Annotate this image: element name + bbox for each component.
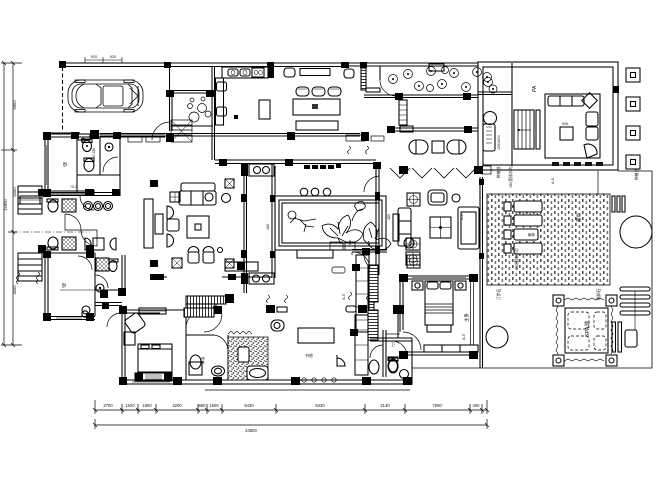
svg-text:SPA池: SPA池 [583, 320, 591, 337]
svg-text:躺椅: 躺椅 [528, 232, 535, 237]
svg-text:PA: PA [532, 85, 538, 92]
svg-text:1350x600: 1350x600 [497, 135, 501, 150]
svg-text:5450: 5450 [12, 187, 17, 197]
svg-text:卧: 卧 [62, 282, 67, 289]
svg-text:920: 920 [91, 55, 97, 59]
svg-text:4200: 4200 [172, 403, 182, 408]
svg-text:5430: 5430 [315, 403, 325, 408]
svg-text:7900: 7900 [432, 403, 442, 408]
svg-text:400: 400 [473, 403, 481, 408]
svg-text:920: 920 [110, 55, 116, 59]
svg-text:卧: 卧 [63, 161, 68, 168]
svg-text:15900: 15900 [3, 199, 8, 211]
svg-text:种植池: 种植池 [634, 168, 639, 180]
svg-text:A-9: A-9 [462, 334, 466, 340]
svg-text:24600: 24600 [245, 428, 257, 433]
svg-text:150宽排水沟: 150宽排水沟 [508, 166, 513, 188]
svg-text:A-9: A-9 [551, 178, 555, 184]
svg-text:9X6: 9X6 [562, 122, 568, 126]
svg-text:种植池: 种植池 [496, 166, 501, 178]
svg-text:5900: 5900 [12, 100, 17, 110]
svg-text:900: 900 [199, 403, 207, 408]
svg-text:汀步石: 汀步石 [496, 288, 501, 300]
svg-text:480: 480 [387, 214, 391, 220]
svg-text:卫: 卫 [391, 342, 395, 347]
svg-text:主卧: 主卧 [463, 313, 470, 322]
svg-text:露台: 露台 [575, 213, 582, 222]
svg-text:1500: 1500 [209, 403, 219, 408]
svg-text:书房: 书房 [305, 352, 313, 358]
svg-text:150宽排水沟: 150宽排水沟 [514, 248, 519, 270]
svg-text:2700: 2700 [103, 403, 113, 408]
svg-text:2130: 2130 [380, 403, 390, 408]
svg-text:3550: 3550 [12, 285, 17, 295]
svg-text:-0.250: -0.250 [92, 148, 96, 158]
svg-text:5430: 5430 [244, 403, 254, 408]
svg-text:淋浴: 淋浴 [200, 356, 205, 364]
svg-text:1520: 1520 [125, 403, 135, 408]
svg-text:+0.2: +0.2 [70, 185, 77, 189]
svg-text:1800: 1800 [142, 403, 152, 408]
svg-text:A-9: A-9 [342, 294, 346, 300]
svg-text:A-9: A-9 [460, 214, 464, 220]
svg-text:480: 480 [266, 224, 270, 230]
